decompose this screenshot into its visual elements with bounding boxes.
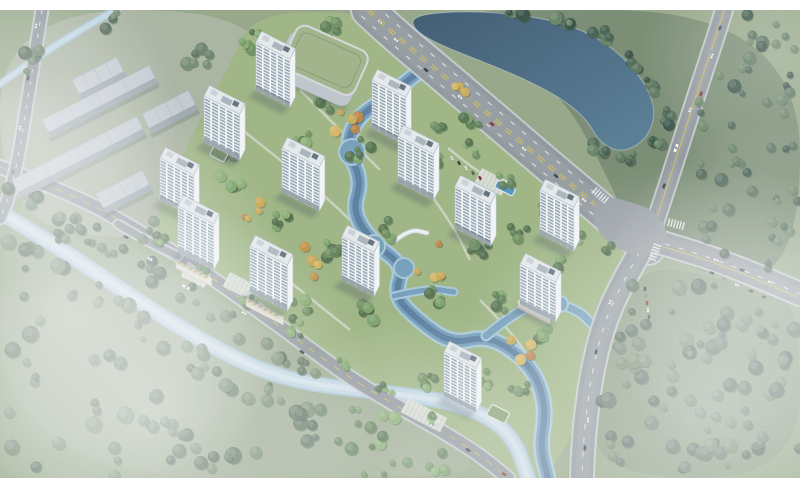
aerial-rendering-stage <box>0 0 800 485</box>
scene-layers <box>0 0 800 485</box>
masterplan-aerial-render <box>0 0 800 485</box>
bottom-white-margin <box>0 478 800 485</box>
atmosphere-haze-layer <box>0 0 800 485</box>
top-white-margin <box>0 0 800 10</box>
cool-color-grade <box>0 10 800 478</box>
